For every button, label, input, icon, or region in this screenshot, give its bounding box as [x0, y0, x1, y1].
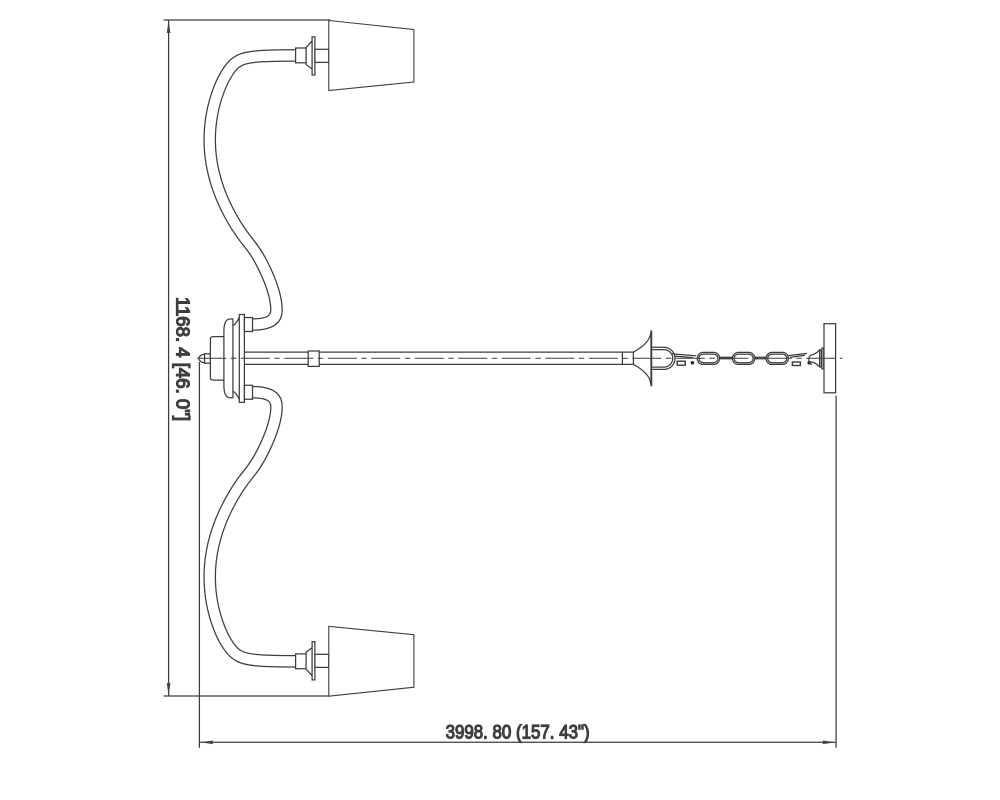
- svg-text:3998. 80 (157. 43"): 3998. 80 (157. 43"): [446, 722, 590, 743]
- svg-text:1168. 4 [46. 0"]: 1168. 4 [46. 0"]: [173, 297, 193, 421]
